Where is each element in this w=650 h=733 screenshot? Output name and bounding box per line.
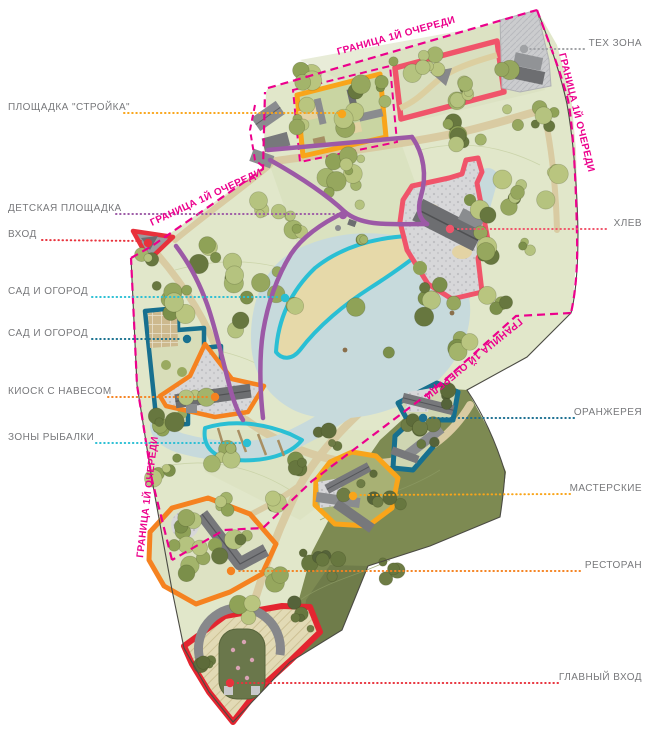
tree (379, 95, 391, 107)
tree (226, 443, 236, 453)
dot-garden2 (183, 335, 191, 343)
dot-entrance (144, 239, 152, 247)
label-kiosk: КИОСК С НАВЕСОМ (8, 386, 112, 397)
tree (519, 242, 527, 250)
tree (328, 439, 335, 446)
label-entrance: ВХОД (8, 229, 37, 240)
dot-playground (339, 211, 347, 219)
label-fishing: ЗОНЫ РЫБАЛКИ (8, 432, 94, 443)
tree (316, 553, 329, 566)
tree (388, 563, 400, 575)
tree (297, 458, 306, 467)
label-garden2: САД И ОГОРОД (8, 328, 88, 339)
tree (152, 281, 161, 290)
tree (351, 75, 370, 94)
tree (495, 62, 509, 76)
dot-tech (520, 45, 528, 53)
tree (307, 625, 314, 632)
label-garden1: САД И ОГОРОД (8, 286, 88, 297)
tree (168, 539, 180, 551)
tree (449, 137, 464, 152)
tree (291, 613, 300, 622)
label-construction: ПЛОЩАДКА "СТРОЙКА" (8, 100, 130, 113)
tree (416, 60, 431, 75)
tree (299, 549, 307, 557)
tree (265, 491, 280, 506)
tree (441, 399, 452, 410)
label-tech: ТЕХ ЗОНА (589, 38, 642, 49)
leader-workshops-line (358, 494, 570, 495)
tree (271, 204, 286, 219)
tree (347, 298, 366, 317)
tree (389, 57, 398, 66)
tree (299, 97, 315, 113)
tree (412, 420, 427, 435)
tree (432, 277, 447, 292)
tree (178, 509, 195, 526)
tree (502, 105, 511, 114)
tree (549, 164, 569, 184)
tree (537, 191, 555, 209)
tree (289, 119, 305, 135)
dot-barn (446, 225, 454, 233)
tree (197, 656, 210, 669)
dot-greenhouse (419, 414, 427, 422)
tree (244, 595, 260, 611)
tree (225, 266, 243, 284)
tree (164, 293, 183, 312)
dot-restaurant (227, 567, 235, 575)
site-plan-page: ПЛОЩАДКА "СТРОЙКА" ДЕТСКАЯ ПЛОЩАДКА ВХОД… (0, 0, 650, 733)
tree (292, 224, 301, 233)
tree (327, 571, 337, 581)
tree (199, 237, 216, 254)
tree (370, 470, 378, 478)
tree (235, 534, 246, 545)
tree (357, 479, 366, 488)
tree (144, 254, 152, 262)
tree (285, 211, 295, 221)
tree (182, 285, 192, 295)
tree (355, 200, 365, 210)
tree (535, 107, 552, 124)
tree (340, 158, 353, 171)
label-restaurant: РЕСТОРАН (585, 560, 642, 571)
tree (372, 496, 383, 507)
tree (417, 439, 426, 448)
tree (178, 565, 195, 582)
dot-workshops (349, 492, 357, 500)
dot-kiosk (211, 393, 219, 401)
tree (232, 312, 249, 329)
tree (415, 307, 434, 326)
tree (155, 418, 164, 427)
label-playground: ДЕТСКАЯ ПЛОЩАДКА (8, 203, 122, 214)
tree (478, 286, 496, 304)
tree (251, 273, 270, 292)
tree (493, 170, 512, 189)
tree (360, 236, 368, 244)
tree (443, 119, 453, 129)
tree (211, 548, 228, 565)
leader-entrance-line (42, 240, 143, 241)
tree (173, 454, 182, 463)
tree (447, 296, 461, 310)
tree (203, 455, 220, 472)
tree (427, 47, 443, 63)
dot-main-entrance (226, 679, 234, 687)
tree (429, 437, 439, 447)
tree (511, 185, 525, 199)
site-plan-svg: ПЛОЩАДКА "СТРОЙКА" ДЕТСКАЯ ПЛОЩАДКА ВХОД… (0, 0, 650, 733)
dot-construction (338, 110, 346, 118)
tree (250, 192, 268, 210)
tree (215, 496, 227, 508)
dot-garden1 (281, 294, 289, 302)
tree (422, 291, 440, 309)
tree (477, 243, 495, 261)
tree (461, 334, 478, 351)
tree (480, 207, 496, 223)
tree (321, 423, 336, 438)
tree (210, 252, 221, 263)
dot-fishing (243, 439, 251, 447)
label-barn: ХЛЕВ (614, 218, 642, 229)
label-main-entrance: ГЛАВНЫЙ ВХОД (559, 670, 642, 683)
tree (331, 552, 346, 567)
tree (287, 298, 304, 315)
tree (375, 75, 388, 88)
tree (383, 347, 394, 358)
labels-left: ПЛОЩАДКА "СТРОЙКА" ДЕТСКАЯ ПЛОЩАДКА ВХОД… (8, 100, 130, 443)
tree (383, 491, 397, 505)
tree (512, 119, 523, 130)
tree (165, 412, 185, 432)
label-greenhouse: ОРАНЖЕРЕЯ (574, 407, 642, 418)
tree (162, 464, 171, 473)
tree (475, 134, 486, 145)
tree (357, 155, 365, 163)
tree (337, 488, 351, 502)
tree (418, 50, 429, 61)
tree (458, 77, 473, 92)
tree (499, 296, 512, 309)
tree (272, 567, 289, 584)
label-workshops: МАСТЕРСКИЕ (570, 483, 642, 494)
